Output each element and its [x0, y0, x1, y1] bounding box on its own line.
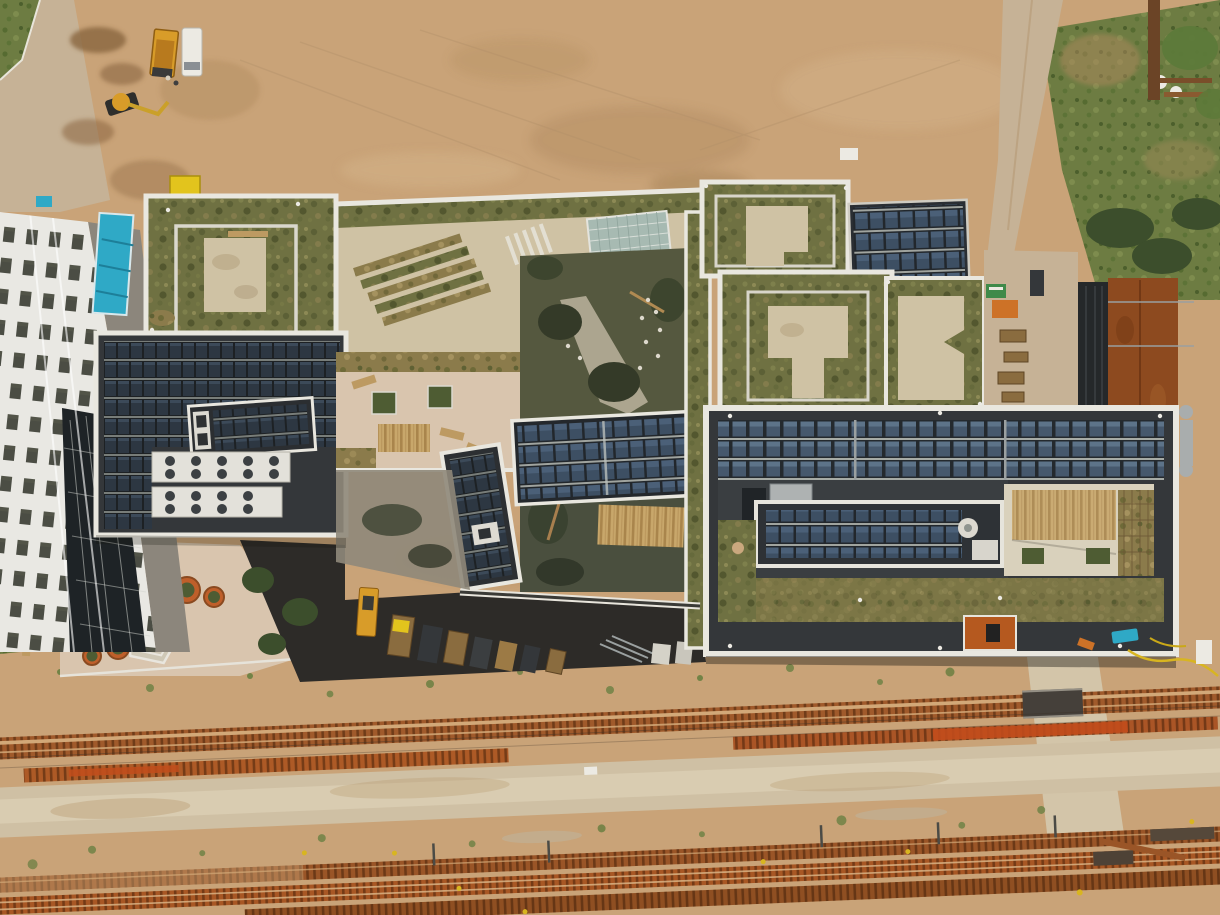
- timber-deck: [228, 231, 268, 237]
- shrub-planter: [428, 386, 452, 408]
- green-machine: [986, 284, 1006, 298]
- tree: [282, 598, 318, 626]
- timber-stack: [1160, 78, 1212, 83]
- rooftop-pipes: [1179, 405, 1193, 477]
- site-marker: [840, 148, 858, 160]
- hvac-unit: [152, 487, 282, 517]
- right-cluster: [702, 182, 984, 410]
- worker: [174, 81, 179, 86]
- central-solar-array: [512, 411, 700, 505]
- bush: [1162, 26, 1218, 70]
- solar-array: [104, 447, 152, 529]
- timber-lounge-deck: [378, 424, 430, 452]
- tree: [527, 256, 563, 280]
- pergola-terrace: [1004, 484, 1154, 576]
- tree: [1132, 238, 1192, 274]
- timber-fence: [1148, 0, 1160, 100]
- dump-truck: [150, 29, 179, 78]
- shrub-planter: [372, 392, 396, 414]
- railway-corridor: [0, 644, 1220, 915]
- shrub-bed: [1086, 548, 1110, 564]
- tree: [362, 504, 422, 536]
- shrub-bed: [1022, 548, 1044, 564]
- small-excavator: [1196, 640, 1212, 664]
- long-building: [706, 408, 1176, 654]
- teal-bin: [36, 196, 52, 207]
- switch-pad: [1093, 850, 1134, 866]
- teal-site-container: [93, 213, 134, 315]
- tree: [408, 544, 452, 568]
- tree: [536, 558, 584, 586]
- green-roof-ne-1: [702, 182, 848, 276]
- green-roof-ne-2: [720, 272, 892, 410]
- aerial-photo: [0, 0, 1220, 915]
- aerial-photo-stage: Top-down aerial drone photograph of a mo…: [0, 0, 1220, 915]
- telehandler: [356, 587, 378, 636]
- timber-pergola: [1012, 490, 1116, 540]
- tree: [538, 304, 582, 340]
- timber-pallets: [597, 505, 684, 548]
- tree: [650, 278, 686, 322]
- inner-roof: [756, 502, 1002, 566]
- tree: [258, 633, 286, 655]
- tree: [588, 362, 640, 402]
- dumpster: [992, 300, 1018, 318]
- green-roof-ne-3: [886, 278, 984, 410]
- concrete-pad: [204, 238, 266, 312]
- spiral-stair: [732, 542, 744, 554]
- tree: [242, 567, 274, 593]
- worker: [166, 76, 171, 81]
- solar-array: [766, 510, 962, 558]
- hvac-unit: [152, 452, 290, 482]
- green-roof-west: [146, 196, 336, 348]
- solar-band: [718, 420, 1164, 480]
- solar-penthouse: [188, 398, 315, 459]
- white-van: [182, 28, 202, 76]
- hvac-box: [972, 540, 998, 560]
- trellis-bed: [1118, 490, 1154, 576]
- crate: [1030, 270, 1044, 296]
- solar-roof-west: [96, 333, 346, 535]
- track-sign: [584, 767, 597, 776]
